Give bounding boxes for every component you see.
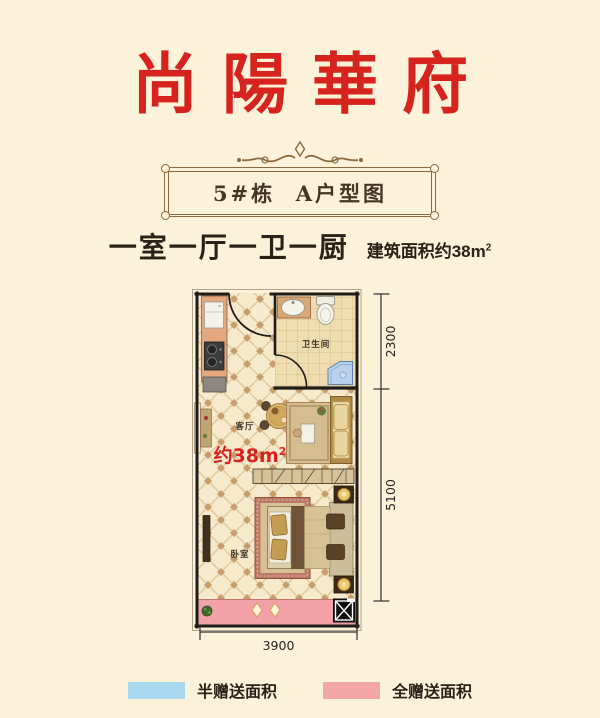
legend-label-full-gift: 全赠送面积 [392,678,472,702]
banner-corner-flourish [161,164,170,173]
dimension-right-top: 2300 [383,326,398,358]
stove-icon [205,342,225,370]
legend-swatch-half-gift [128,682,185,699]
banner-corner-flourish [161,211,170,220]
bedroom-label: 卧室 [230,549,249,560]
area-label: 约38m2 [214,444,287,467]
banner-label: 5#栋 A户型图 [213,178,387,208]
legend: 半赠送面积 全赠送面积 [0,678,600,702]
dimension-bottom: 3900 [263,638,295,653]
sofa-icon [331,397,353,464]
fridge-icon [205,302,224,328]
layout-text: 一室一厅一卫一厨 [109,226,349,266]
living-label: 客厅 [234,421,254,432]
floor-plan: 卫生间 [185,280,410,660]
tv-shelf-icon [253,469,354,484]
legend-label-half-gift: 半赠送面积 [197,678,277,702]
banner-inner-frame: 5#栋 A户型图 [168,171,432,215]
area-label-sup: 2 [279,445,287,458]
banner-corner-flourish [430,211,439,220]
legend-swatch-full-gift [323,682,380,699]
area-label-value: 约38m [214,444,279,467]
page-title: 尚陽華府 [0,42,600,128]
toilet-icon [317,297,335,325]
plant-icon [317,407,326,416]
legend-item-half-gift: 半赠送面积 [128,678,277,702]
window-decor-icon [201,409,212,447]
rug-icon [287,403,332,464]
bed-icon [268,503,354,577]
bathroom: 卫生间 [274,294,358,388]
bathroom-label: 卫生间 [302,339,331,350]
page: 尚陽華府 5#栋 A户型图 一室一厅一卫一厨 建筑面积约38m2 [0,0,600,718]
flue-icon [333,599,355,623]
headboard [330,503,354,577]
nightstand-lamp-icon [334,486,354,503]
area-text-value: 建筑面积约38m [367,242,486,261]
sink-icon [278,297,311,318]
plant-icon [202,606,212,616]
area-text: 建筑面积约38m2 [367,237,492,262]
subtitle: 一室一厅一卫一厨 建筑面积约38m2 [0,226,600,266]
nightstand-lamp-icon [334,576,354,593]
balcony [198,599,356,626]
pillow-icon [327,514,345,529]
pillow-icon [327,545,345,560]
banner-frame: 5#栋 A户型图 [164,167,436,217]
banner-corner-flourish [430,164,439,173]
tv-icon [203,516,210,562]
area-text-sup: 2 [486,242,492,253]
dimension-right-bottom: 5100 [383,479,398,511]
legend-item-full-gift: 全赠送面积 [323,678,472,702]
cabinet-base [203,377,226,392]
flourish-ornament-icon [225,140,375,168]
coffee-table-icon [301,424,315,443]
kitchen [202,296,228,392]
